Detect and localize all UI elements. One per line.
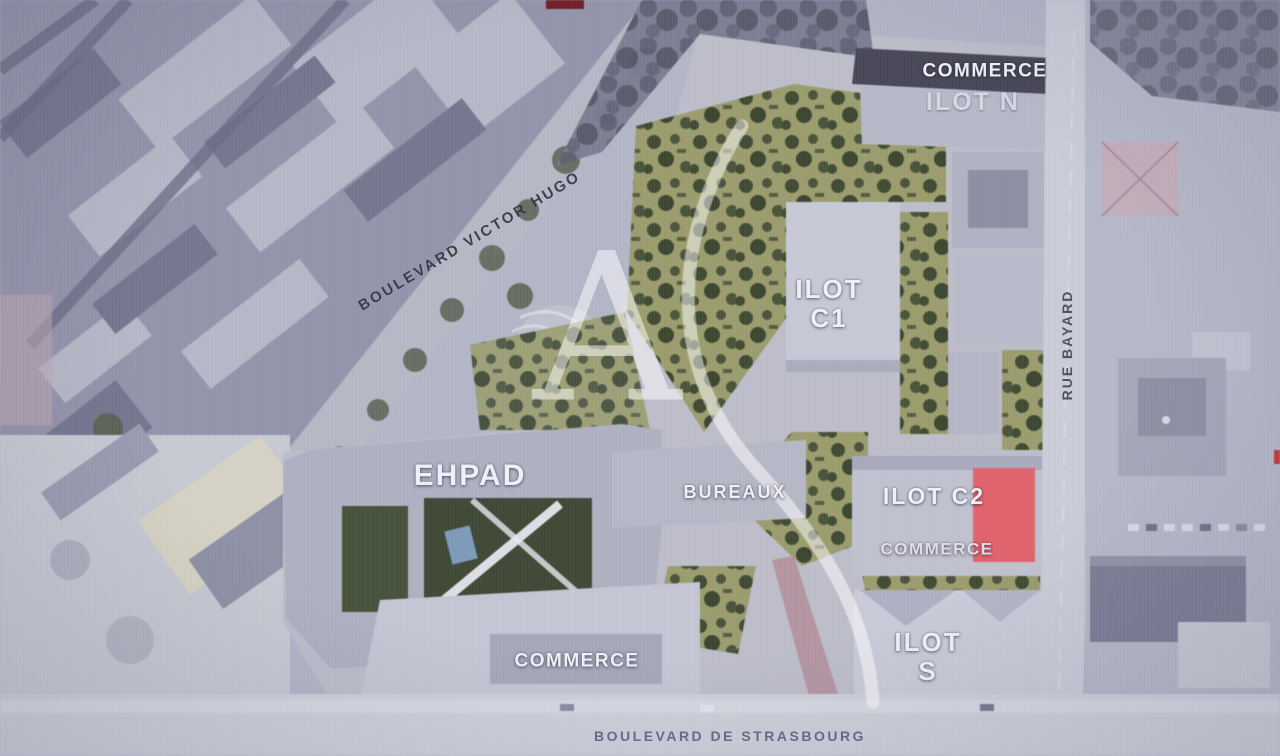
block-ilot-s	[854, 590, 1044, 700]
block-commerce-south	[360, 582, 700, 700]
building-ilot-c1	[786, 202, 900, 372]
top-red-mark	[546, 0, 584, 9]
aerial-right-district	[1085, 0, 1280, 756]
block-ilot-c2	[852, 456, 1046, 576]
building-ilot-n	[860, 86, 1046, 150]
ilot-c2-highlight	[973, 468, 1035, 562]
boulevard-strasbourg-road	[0, 694, 1280, 756]
building-pink-roof	[1102, 142, 1178, 216]
aerial-masterplan-map: A BOULEVARD VICTOR HUGO COMMERCE ILOT N …	[0, 0, 1280, 756]
map-graphic	[0, 0, 1280, 756]
building-courtyard	[1118, 358, 1226, 476]
right-red-mark	[1274, 450, 1280, 464]
